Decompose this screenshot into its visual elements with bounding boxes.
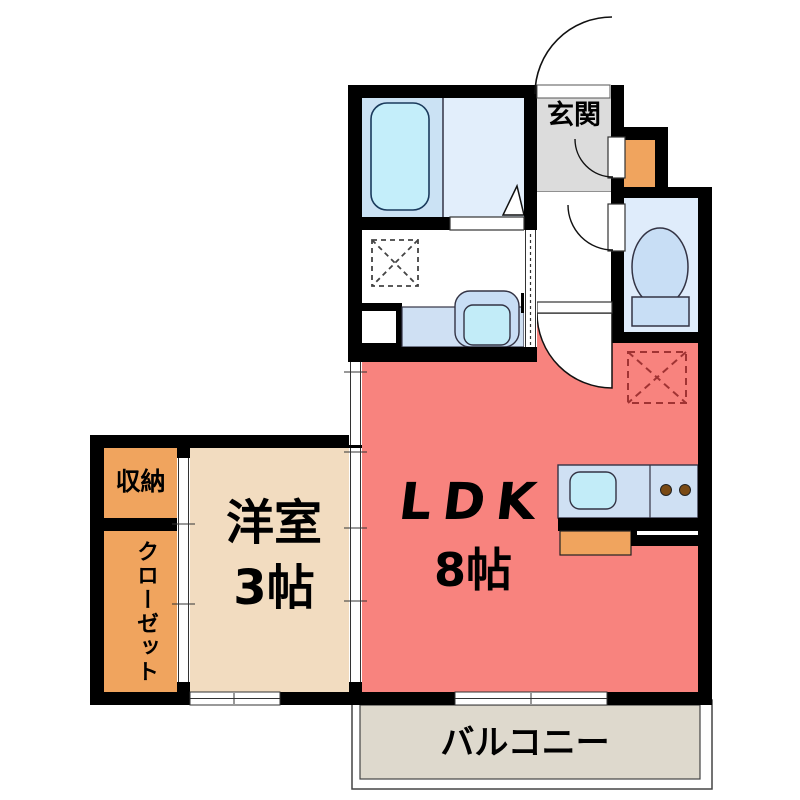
washroom-sliding-door [524,230,537,347]
ldk-door-leaf [537,302,612,313]
kitchen-sink [570,472,616,509]
kitchen-counter [558,465,698,518]
balcony-label: バルコニー [375,726,675,762]
bathtub [371,103,429,210]
ldk-size-label: 8帖 [378,546,568,594]
kitchen-lower-cabinet [560,531,631,555]
pipe-space [362,311,396,343]
closet-label: クローゼット [119,536,157,688]
stove-burner-left [661,485,672,496]
kitchen-wall-slit [637,531,698,535]
bathroom-door [450,217,524,230]
entrance-doorway [537,85,610,98]
shoe-cabinet [624,140,655,187]
toilet-door-leaf [608,204,625,251]
western-room-label: 洋室 [199,498,349,548]
ldk-label: LDK [375,476,572,530]
entrance-label: 玄関 [534,102,614,130]
washbasin-bowl [464,305,510,345]
stove-burner-right [680,485,691,496]
room-hallway [537,192,611,302]
storage-label: 収納 [104,469,177,495]
western-room-window [190,692,280,705]
entrance-door-arc [535,17,612,94]
ldk-balcony-window [455,692,607,705]
floor-plan: 玄関 LDK 8帖 洋室 3帖 収納 クローゼット バルコニー [0,0,800,800]
storage-door-leaf [608,137,625,178]
toilet [632,228,689,326]
western-room-size-label: 3帖 [199,563,349,613]
